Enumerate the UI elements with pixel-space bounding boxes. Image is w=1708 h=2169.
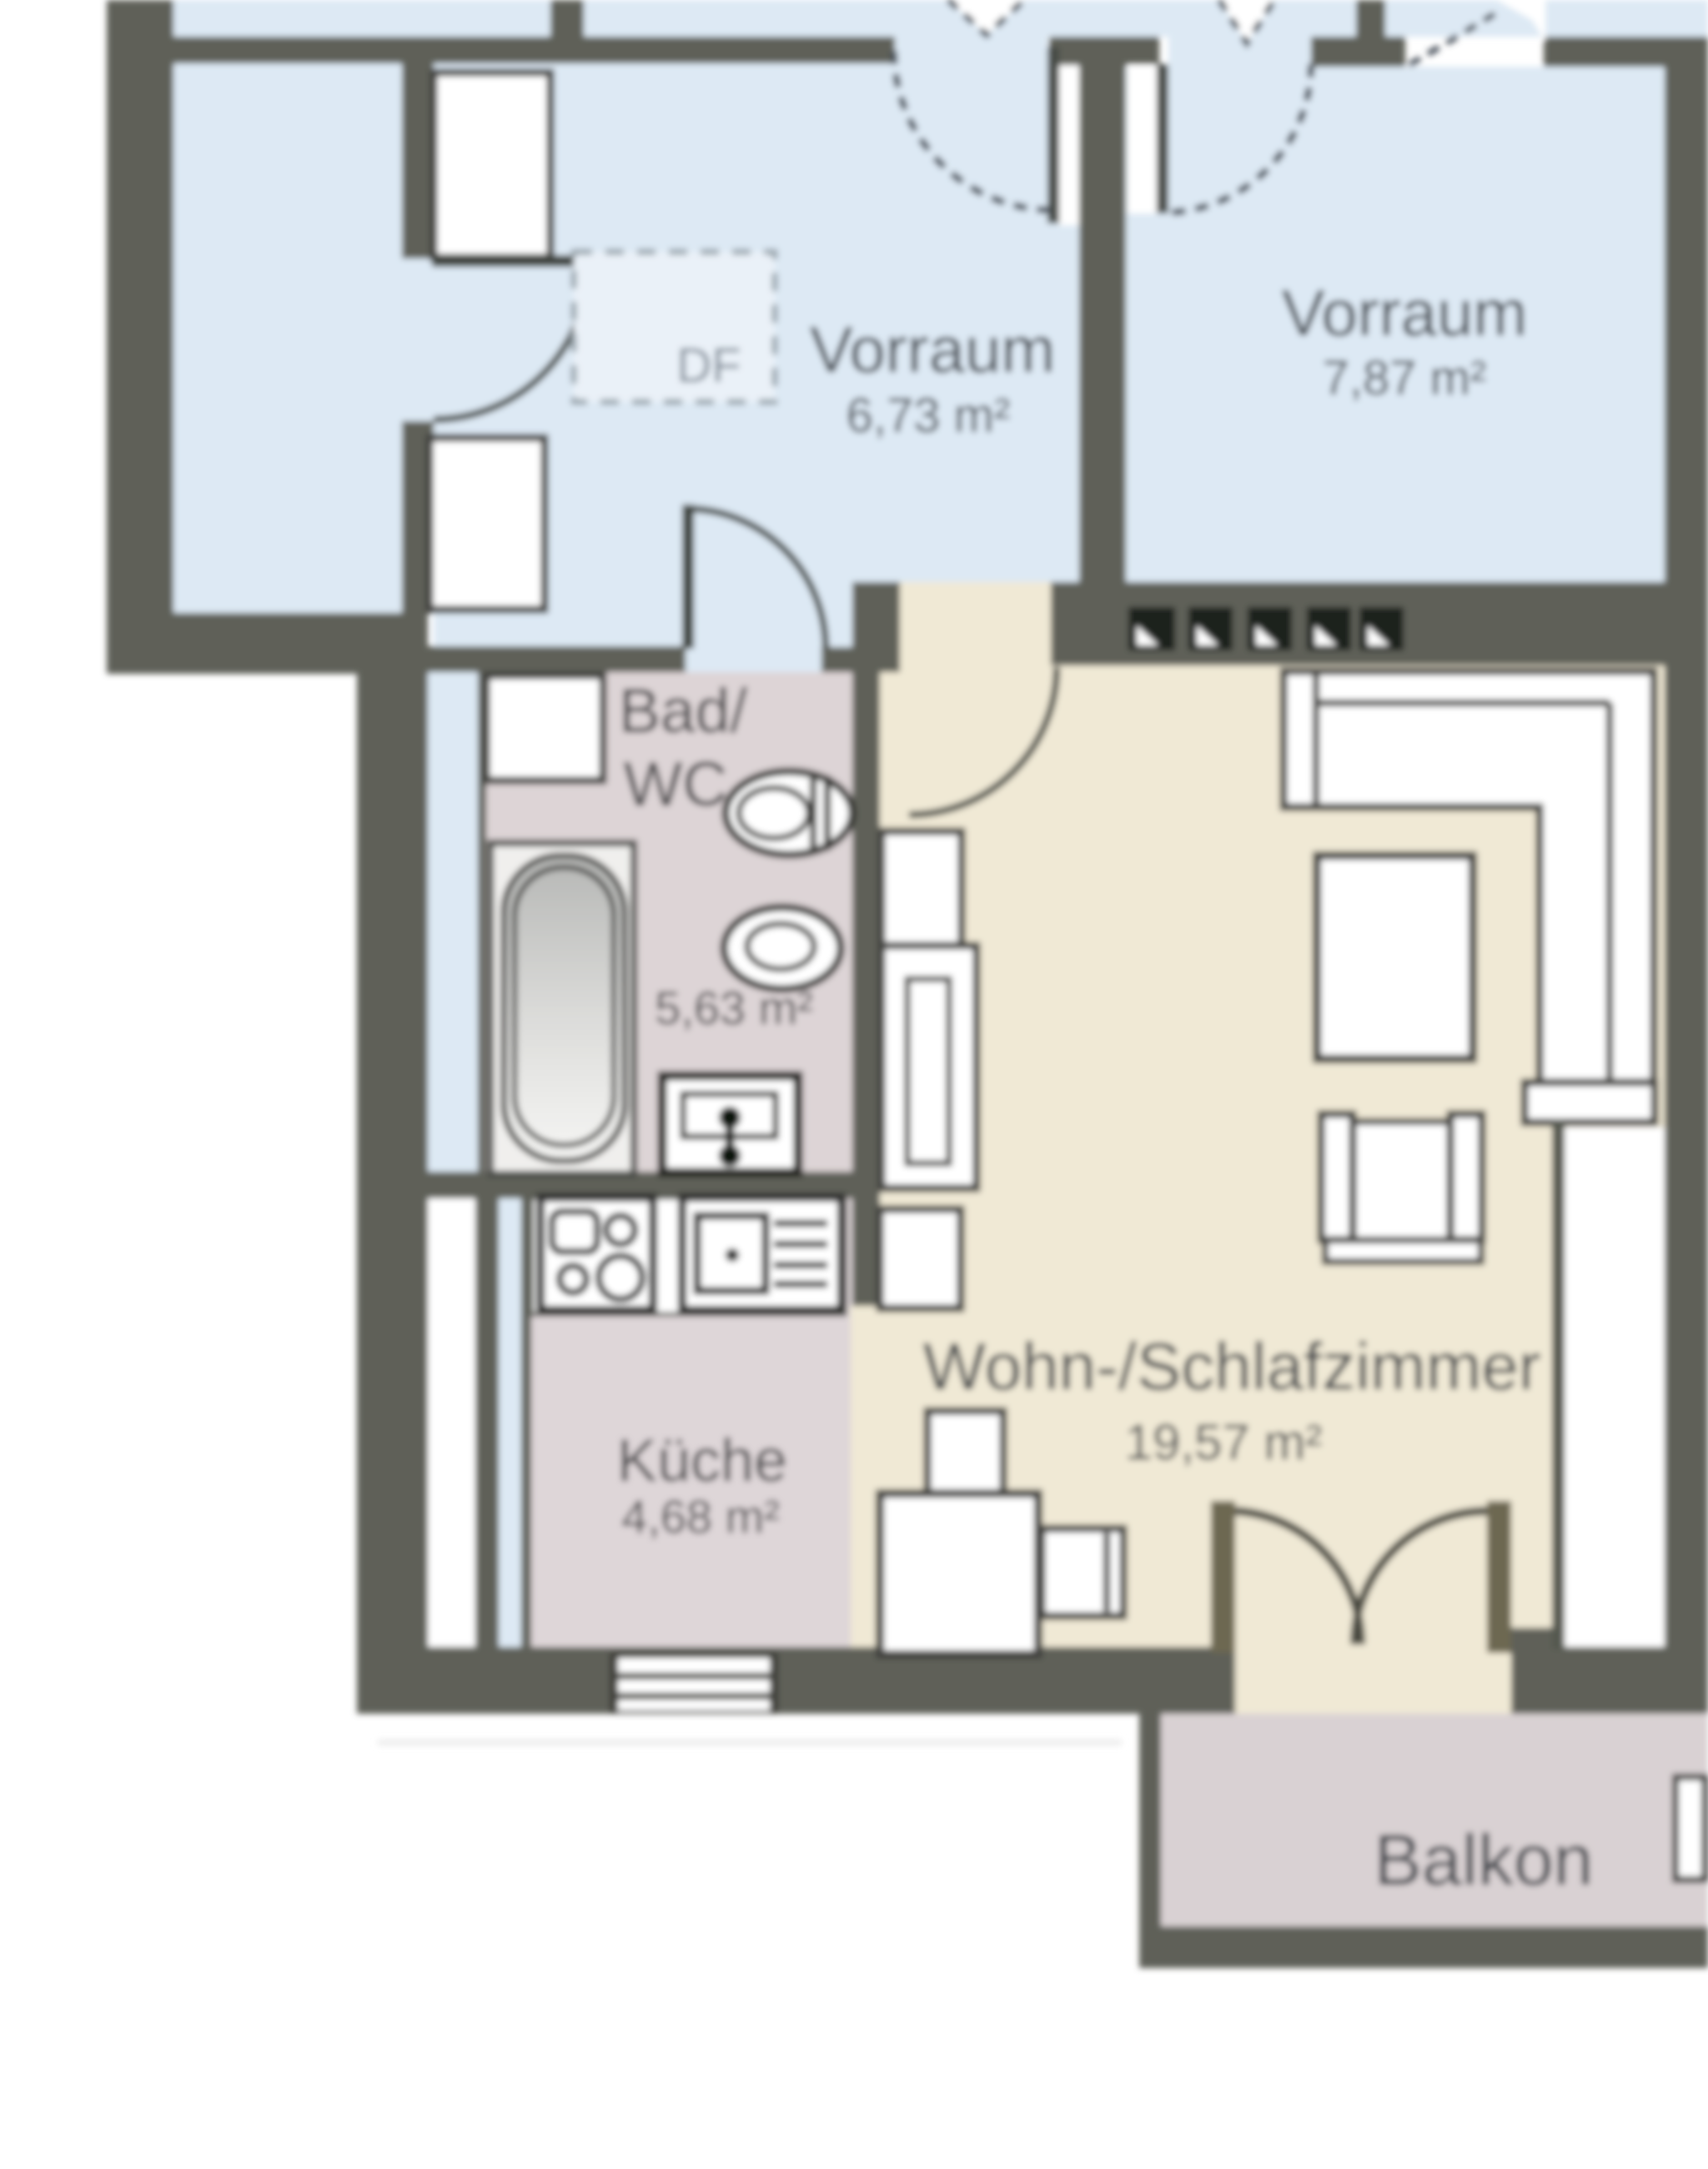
svg-text:19,57 m²: 19,57 m² (1125, 1414, 1323, 1470)
svg-text:7,87 m²: 7,87 m² (1323, 351, 1487, 405)
svg-text:6,73 m²: 6,73 m² (846, 389, 1011, 443)
svg-text:Wohn-/Schlafzimmer: Wohn-/Schlafzimmer (923, 1329, 1541, 1403)
svg-text:DF: DF (676, 339, 741, 393)
svg-text:Vorraum: Vorraum (810, 313, 1056, 386)
svg-text:Balkon: Balkon (1374, 1820, 1594, 1900)
svg-text:Vorraum: Vorraum (1282, 276, 1528, 349)
svg-text:WC: WC (624, 749, 728, 819)
svg-text:Bad/: Bad/ (619, 675, 747, 746)
svg-text:4,68 m²: 4,68 m² (621, 1490, 780, 1543)
svg-text:Küche: Küche (617, 1428, 787, 1494)
